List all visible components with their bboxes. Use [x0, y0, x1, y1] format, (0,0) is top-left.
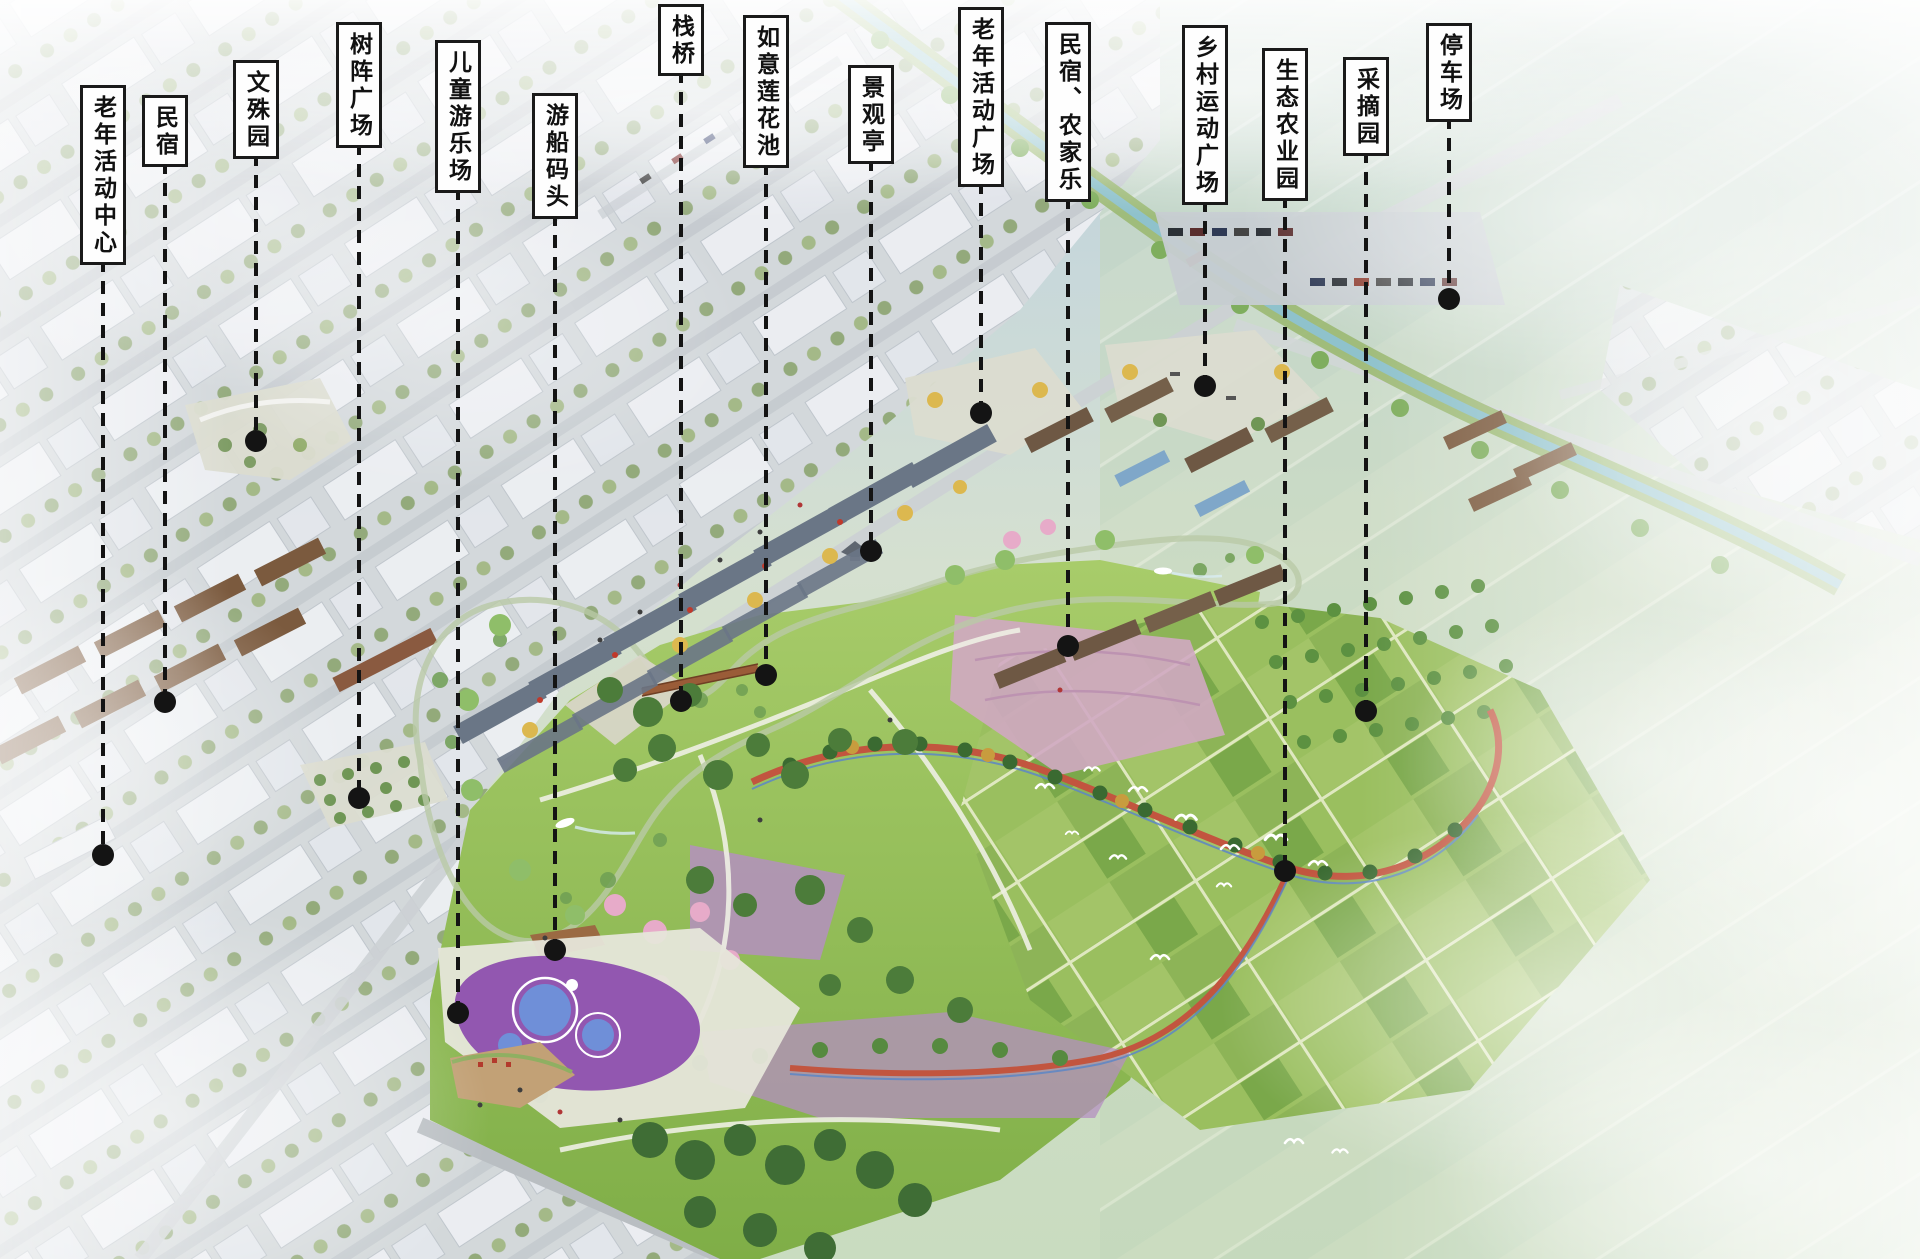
location-dot-icon: [544, 939, 566, 961]
masterplan-rendering: 老年活动中心 民宿 文殊园 树阵广场 儿童游乐场 游船码头: [0, 0, 1920, 1259]
leader-line: [1447, 116, 1451, 299]
location-dot-icon: [154, 691, 176, 713]
callout-label: 停车场: [1438, 33, 1461, 114]
leader-line: [163, 161, 167, 702]
leader-line: [357, 142, 361, 798]
location-dot-icon: [1274, 860, 1296, 882]
callout-label: 游船码头: [544, 103, 567, 211]
callout-label: 景观亭: [860, 75, 883, 156]
leader-line: [254, 153, 258, 441]
callout-label-box: 生态农业园: [1262, 48, 1308, 201]
location-dot-icon: [1438, 288, 1460, 310]
callout-label-box: 栈桥: [658, 4, 704, 76]
callout-label-box: 民宿、农家乐: [1045, 22, 1091, 202]
location-dot-icon: [970, 402, 992, 424]
location-dot-icon: [1355, 700, 1377, 722]
leader-line: [101, 259, 105, 855]
location-dot-icon: [92, 844, 114, 866]
location-dot-icon: [860, 540, 882, 562]
leader-line: [1364, 150, 1368, 711]
callout-label-box: 景观亭: [848, 65, 894, 164]
leader-line: [679, 70, 683, 701]
location-dot-icon: [670, 690, 692, 712]
callout-label-box: 如意莲花池: [743, 15, 789, 168]
callout-label: 树阵广场: [348, 32, 371, 140]
callout-layer: 老年活动中心 民宿 文殊园 树阵广场 儿童游乐场 游船码头: [0, 0, 1920, 1259]
callout-label: 如意莲花池: [755, 25, 778, 160]
callout-label: 老年活动中心: [92, 95, 115, 257]
location-dot-icon: [447, 1002, 469, 1024]
callout-label: 生态农业园: [1274, 58, 1297, 193]
callout-label: 采摘园: [1355, 67, 1378, 148]
callout-label: 栈桥: [670, 14, 693, 68]
leader-line: [456, 187, 460, 1013]
location-dot-icon: [755, 664, 777, 686]
callout-label: 乡村运动广场: [1194, 35, 1217, 197]
leader-line: [553, 213, 557, 950]
leader-line: [1066, 196, 1070, 646]
callout-label-box: 老年活动中心: [80, 85, 126, 265]
callout-label-box: 民宿: [142, 95, 188, 167]
callout-label: 民宿: [154, 105, 177, 159]
leader-line: [764, 162, 768, 675]
callout-label: 文殊园: [245, 70, 268, 151]
location-dot-icon: [1057, 635, 1079, 657]
callout-label-box: 儿童游乐场: [435, 40, 481, 193]
callout-label: 老年活动广场: [970, 17, 993, 179]
callout-label-box: 采摘园: [1343, 57, 1389, 156]
callout-label-box: 树阵广场: [336, 22, 382, 148]
callout-label: 儿童游乐场: [447, 50, 470, 185]
callout-label-box: 乡村运动广场: [1182, 25, 1228, 205]
callout-label-box: 老年活动广场: [958, 7, 1004, 187]
leader-line: [1203, 199, 1207, 386]
leader-line: [979, 181, 983, 413]
callout-label-box: 游船码头: [532, 93, 578, 219]
location-dot-icon: [245, 430, 267, 452]
callout-label: 民宿、农家乐: [1057, 32, 1080, 194]
leader-line: [1283, 195, 1287, 871]
callout-label-box: 文殊园: [233, 60, 279, 159]
leader-line: [869, 158, 873, 551]
callout-label-box: 停车场: [1426, 23, 1472, 122]
location-dot-icon: [1194, 375, 1216, 397]
location-dot-icon: [348, 787, 370, 809]
